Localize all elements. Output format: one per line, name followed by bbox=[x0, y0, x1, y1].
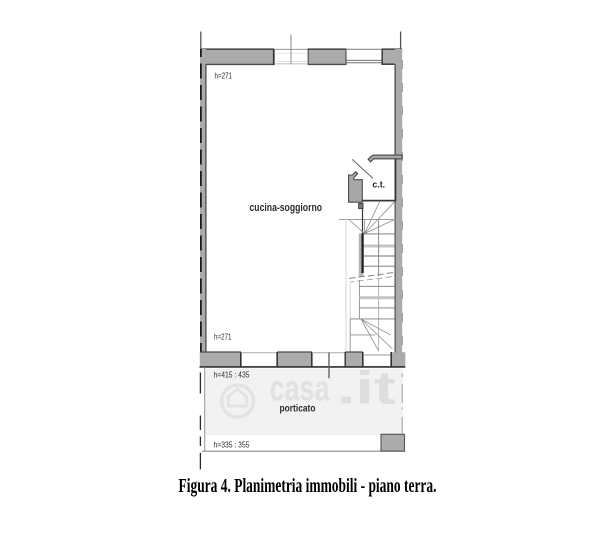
svg-text:h=271: h=271 bbox=[215, 72, 233, 81]
svg-text:h=271: h=271 bbox=[214, 333, 232, 342]
svg-text:.it: .it bbox=[337, 362, 396, 414]
svg-text:Figura 4. Planimetria immobili: Figura 4. Planimetria immobili - piano t… bbox=[179, 476, 437, 497]
svg-text:porticato: porticato bbox=[280, 403, 316, 415]
svg-text:cucina-soggiorno: cucina-soggiorno bbox=[250, 202, 323, 214]
svg-text:c.t.: c.t. bbox=[372, 179, 385, 189]
svg-text:h=335 : 355: h=335 : 355 bbox=[214, 441, 250, 450]
svg-text:h=415 : 435: h=415 : 435 bbox=[214, 371, 250, 380]
